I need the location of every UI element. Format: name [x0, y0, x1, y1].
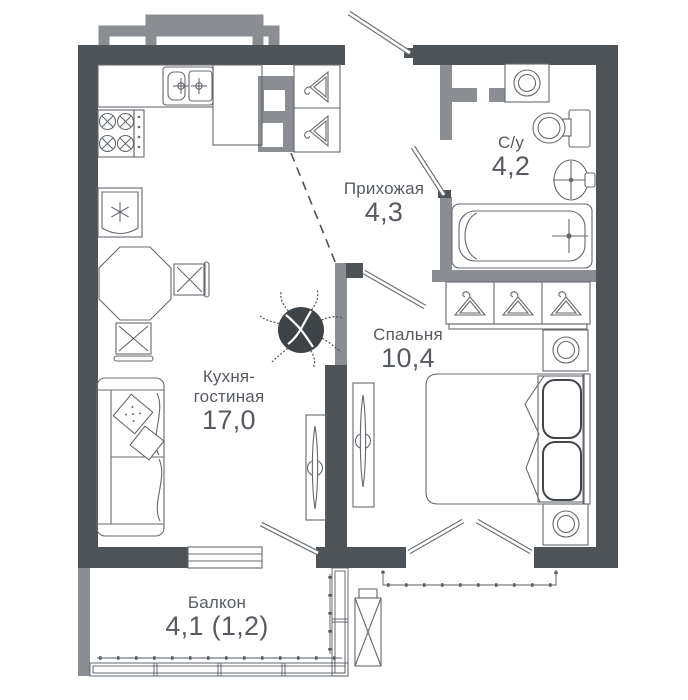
sofa-icon	[97, 378, 164, 536]
room-area: 4,2	[492, 153, 530, 180]
floor-plan: Кухня- гостиная 17,0 Прихожая 4,3 С/у 4,…	[0, 0, 688, 700]
bath-sink-icon	[553, 160, 595, 200]
washing-machine-icon	[505, 64, 549, 102]
room-name: Кухня- гостиная	[194, 367, 265, 407]
room-label-balcony: Балкон 4,1 (1,2)	[165, 593, 268, 640]
room-name: С/у	[492, 133, 530, 153]
room-area: 4,3	[344, 199, 424, 226]
room-area: 17,0	[194, 407, 265, 434]
room-name: Спальня	[373, 325, 443, 345]
nightstand-icon	[543, 330, 588, 371]
wardrobe-icon	[446, 282, 590, 329]
window	[188, 547, 262, 568]
bed-icon	[426, 374, 590, 504]
room-name: Прихожая	[344, 179, 424, 199]
room-label-hallway: Прихожая 4,3	[344, 179, 424, 226]
chair-icon	[114, 323, 153, 361]
toilet-icon	[533, 110, 590, 147]
ac-unit-icon	[355, 589, 381, 666]
stove-icon	[98, 110, 144, 157]
kitchen-sink-icon	[163, 67, 213, 105]
bedroom-balcony-door-swing-icon	[409, 521, 531, 552]
room-area: 4,1 (1,2)	[165, 613, 268, 640]
entrance-door-swing-icon	[349, 13, 410, 53]
plant-icon	[260, 289, 343, 368]
dining-table-icon	[99, 247, 171, 320]
tv-panel-icon	[306, 415, 326, 520]
room-label-bedroom: Спальня 10,4	[373, 325, 443, 372]
bedroom-door-swing-icon	[364, 272, 425, 307]
tv-panel-icon	[353, 383, 374, 507]
floor-plan-drawing	[0, 0, 688, 700]
bathtub-icon	[452, 204, 592, 268]
entrance-closet	[294, 65, 340, 152]
fridge-icon	[98, 188, 142, 237]
zone-boundary-dashed-line	[291, 153, 336, 264]
living-balcony-door-swing-icon	[261, 524, 318, 553]
nightstand-icon	[543, 504, 588, 545]
room-area: 10,4	[373, 345, 443, 372]
room-name: Балкон	[165, 593, 268, 613]
chair-icon	[174, 262, 209, 297]
room-label-kitchen-living: Кухня- гостиная 17,0	[194, 367, 265, 434]
room-label-bathroom: С/у 4,2	[492, 133, 530, 180]
